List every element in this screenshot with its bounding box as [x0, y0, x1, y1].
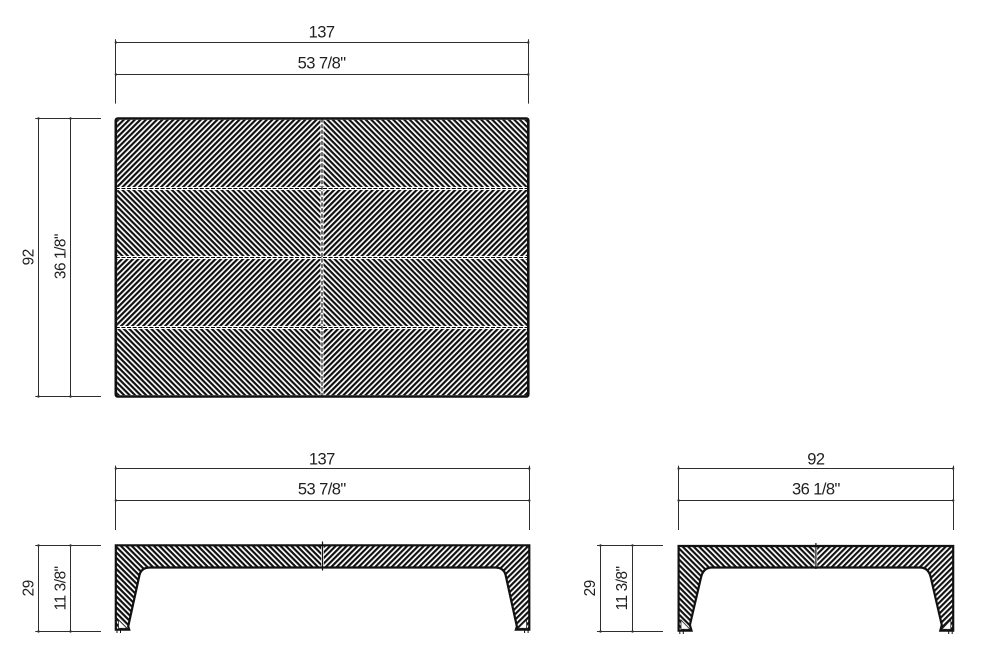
svg-text:137: 137 — [309, 23, 335, 41]
svg-text:53 7/8": 53 7/8" — [298, 481, 347, 499]
svg-text:29: 29 — [582, 580, 599, 596]
svg-text:137: 137 — [309, 451, 335, 469]
svg-text:53 7/8": 53 7/8" — [298, 54, 347, 72]
svg-text:11 3/8": 11 3/8" — [614, 566, 631, 610]
svg-text:11 3/8": 11 3/8" — [52, 566, 69, 610]
svg-text:29: 29 — [20, 580, 37, 596]
svg-text:36 1/8": 36 1/8" — [792, 481, 841, 499]
svg-text:36 1/8": 36 1/8" — [52, 234, 69, 279]
svg-text:92: 92 — [20, 249, 37, 265]
svg-text:92: 92 — [807, 451, 825, 469]
